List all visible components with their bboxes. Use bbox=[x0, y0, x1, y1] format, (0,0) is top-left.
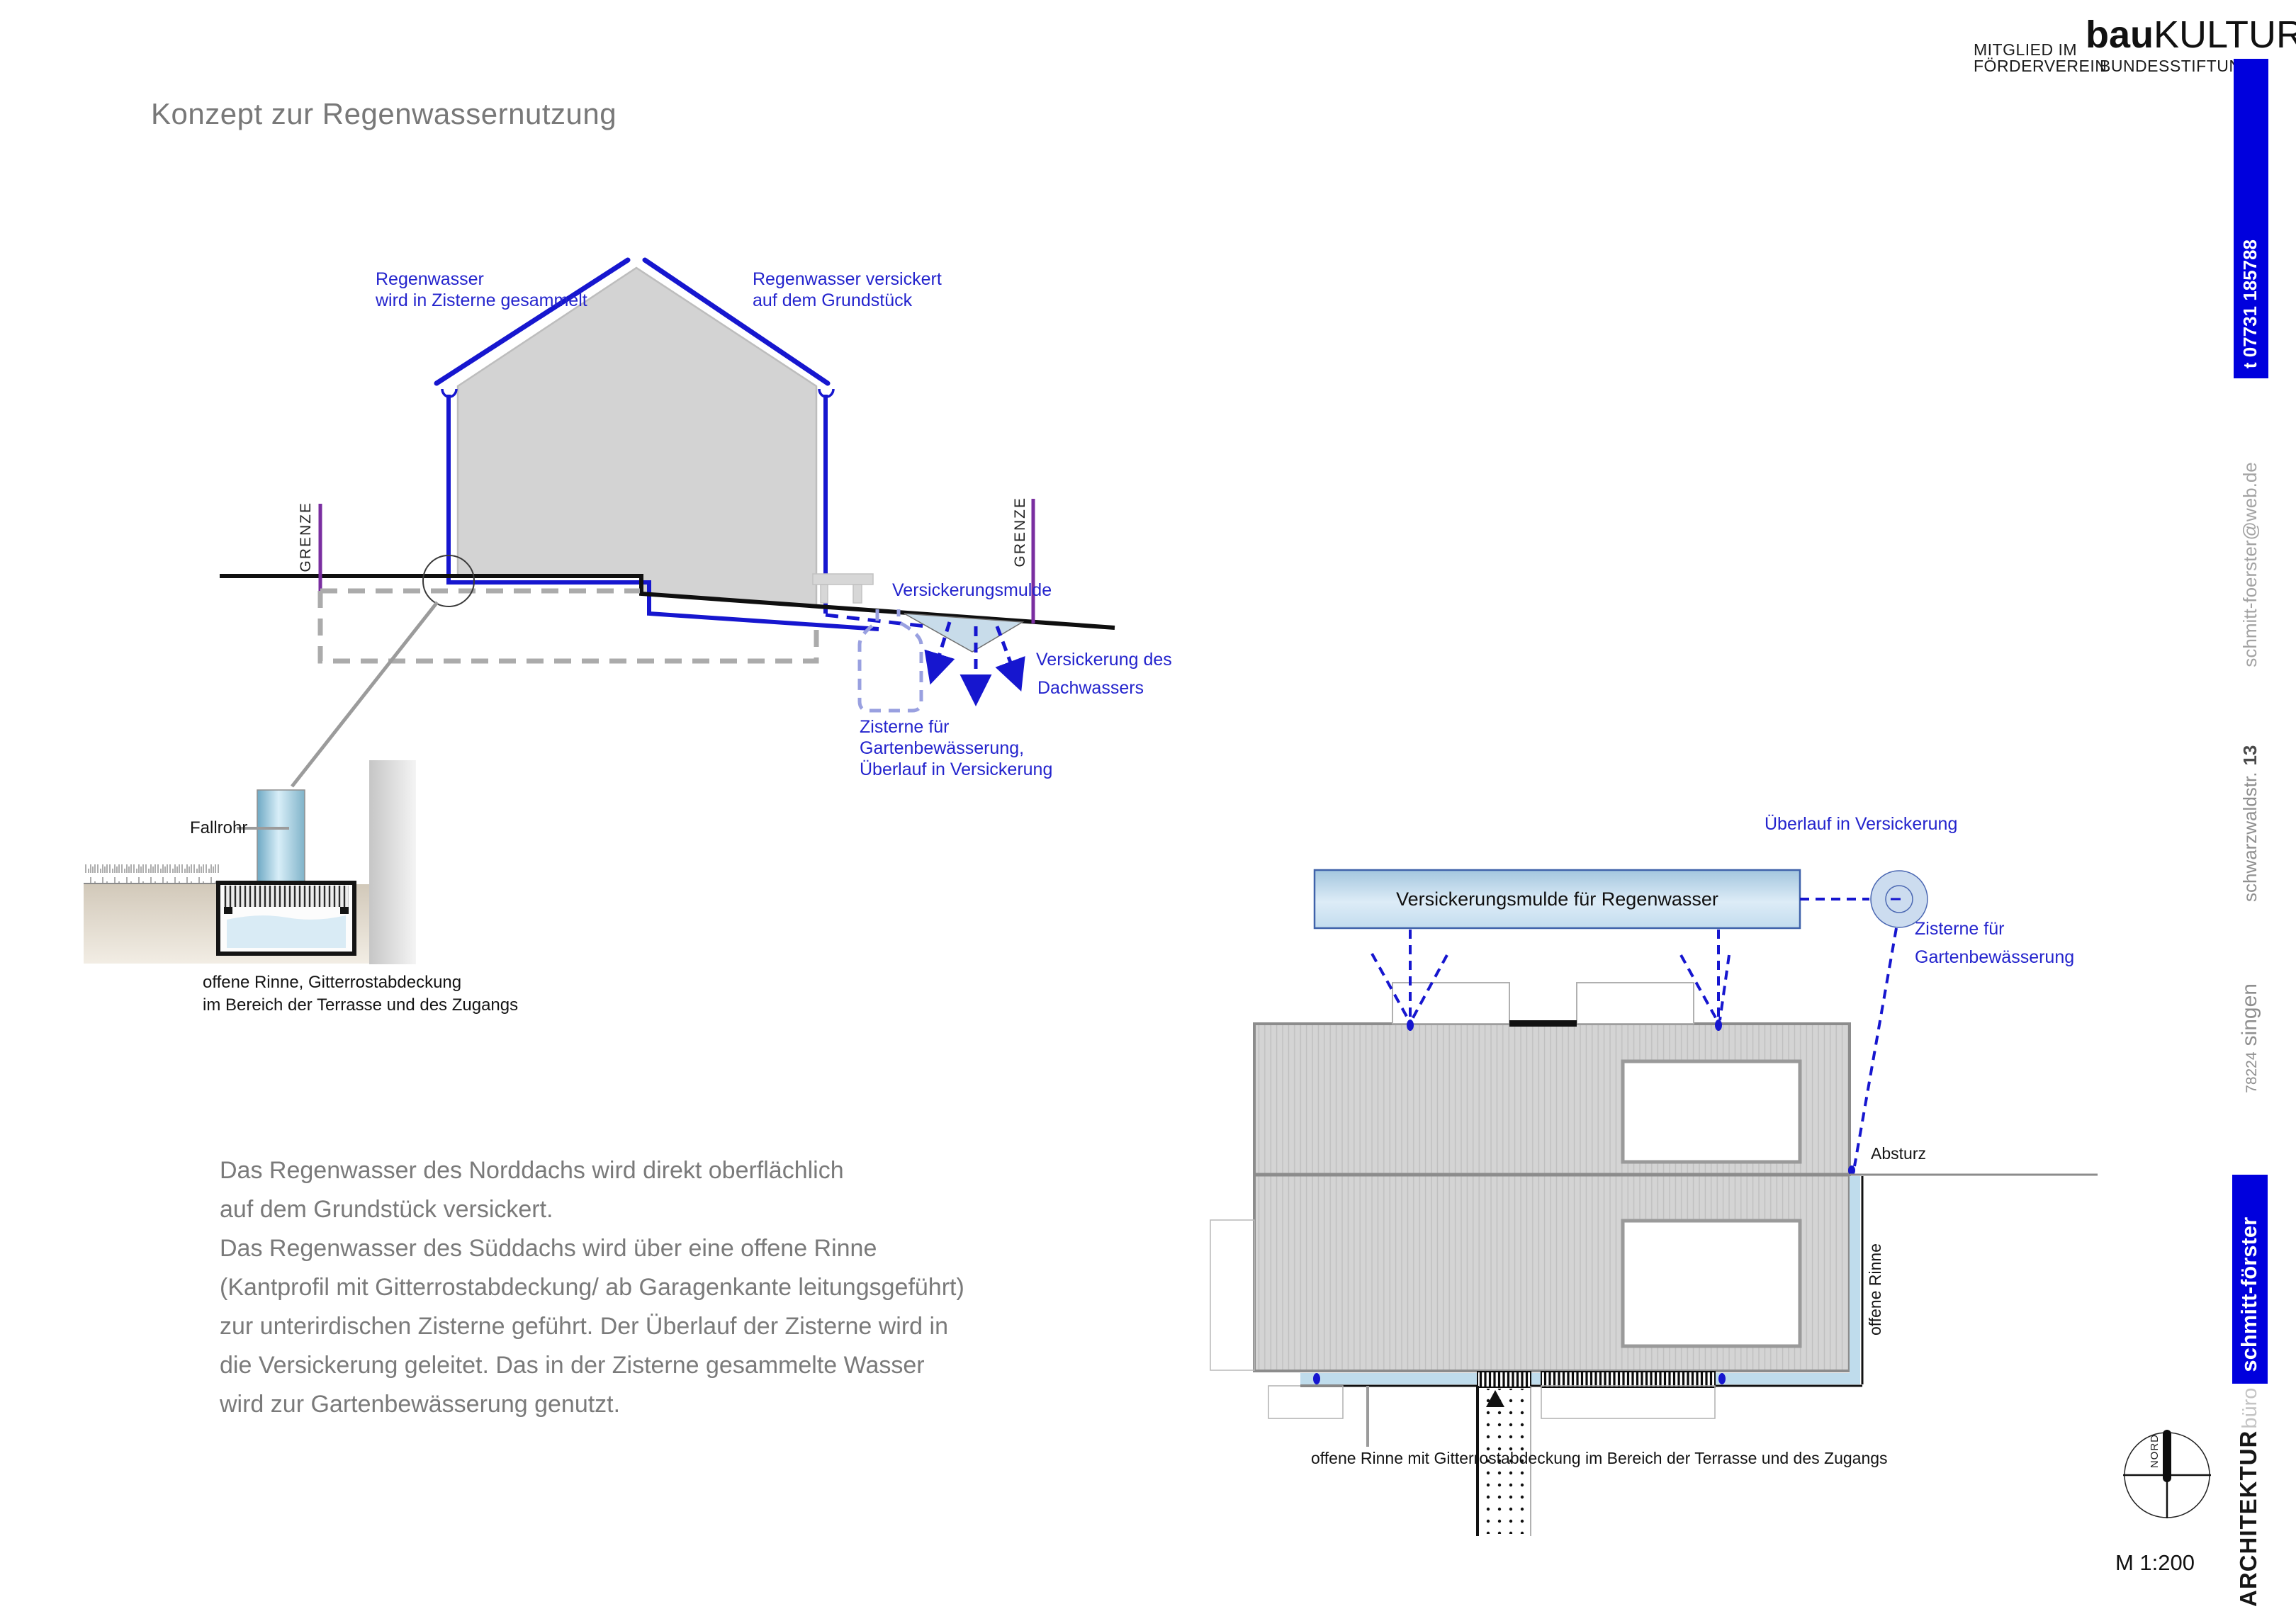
boundary-label-right: GRENZE bbox=[1012, 497, 1029, 568]
cistern-label-2: Gartenbewässerung, bbox=[860, 739, 1024, 759]
concept-paragraph: Das Regenwasser des Norddachs wird direk… bbox=[220, 1151, 964, 1424]
north-compass-icon bbox=[2123, 1433, 2211, 1518]
plan-overflow-label: Überlauf in Versickerung bbox=[1765, 815, 1957, 835]
plan-drop-label: Absturz bbox=[1871, 1145, 1926, 1163]
downpipe-detail bbox=[257, 790, 305, 884]
firm-street: schwarzwaldstr. bbox=[2239, 772, 2261, 903]
infiltration-arrow bbox=[997, 626, 1018, 682]
channel-detail-drawing bbox=[84, 760, 416, 964]
firm-street-no: 13 bbox=[2239, 745, 2261, 766]
wall bbox=[369, 760, 416, 964]
firm-zip: 78224 bbox=[2244, 1051, 2261, 1093]
logo-foundation: BUNDESSTIFTUNG bbox=[2100, 57, 2254, 76]
firm-architektur: ARCHITEKTUR bbox=[2235, 1430, 2262, 1607]
logo-member-line2: FÖRDERVEREIN bbox=[1974, 57, 2107, 76]
detail-caption-2: im Bereich der Terrasse und des Zugangs bbox=[203, 996, 518, 1015]
open-channel-right bbox=[1850, 1176, 1860, 1383]
firm-name-badge: schmitt-förster bbox=[2232, 1175, 2268, 1384]
plan-caption: offene Rinne mit Gitterrostabdeckung im … bbox=[1311, 1450, 1888, 1467]
water-fill bbox=[227, 915, 346, 948]
grass bbox=[84, 864, 220, 884]
section-diagram bbox=[220, 260, 1115, 786]
label-south-roof-1: Regenwasser versickert bbox=[753, 270, 942, 290]
plan-channel-label: offene Rinne bbox=[1866, 1243, 1885, 1336]
north-notch bbox=[1577, 983, 1694, 1024]
plan-cistern-label-2: Gartenbewässerung bbox=[1915, 948, 2074, 968]
infiltration-label-2: Dachwassers bbox=[1037, 679, 1144, 699]
firm-email: schmitt-foerster@web.de bbox=[2239, 462, 2261, 667]
page-title: Konzept zur Regenwassernutzung bbox=[151, 98, 617, 130]
label-north-roof-1: Regenwasser bbox=[376, 270, 484, 290]
terrace-deck bbox=[813, 574, 873, 603]
baukultur-logo: bauKULTUR bbox=[2086, 13, 2296, 57]
detail-leader-line bbox=[292, 602, 437, 786]
roof-plan bbox=[1210, 870, 2098, 1536]
plan-swale-title: Versickerungsmulde für Regenwasser bbox=[1315, 870, 1800, 928]
firm-phone-badge: t 07731 185788 bbox=[2234, 59, 2268, 378]
plan-cistern-label-1: Zisterne für bbox=[1915, 920, 2004, 939]
label-south-roof-2: auf dem Grundstück bbox=[753, 291, 912, 311]
swale-label: Versickerungsmulde bbox=[892, 581, 1052, 601]
detail-caption-1: offene Rinne, Gitterrostabdeckung bbox=[203, 973, 461, 992]
infiltration-label-1: Versickerung des bbox=[1036, 650, 1172, 670]
downpipe-label: Fallrohr bbox=[190, 819, 247, 837]
roof-opening bbox=[1623, 1221, 1800, 1346]
cistern-label-3: Überlauf in Versickerung bbox=[860, 760, 1052, 780]
boundary-label-left: GRENZE bbox=[298, 502, 315, 572]
house-body bbox=[458, 268, 816, 605]
scale-label: M 1:200 bbox=[2115, 1550, 2195, 1576]
north-label: NORD bbox=[2149, 1434, 2161, 1468]
north-notch bbox=[1392, 983, 1509, 1024]
cistern-label-1: Zisterne für bbox=[860, 718, 949, 738]
roof-opening bbox=[1623, 1061, 1800, 1162]
office-sidebar: ARCHITEKTUR büro schmitt-förster 78224 s… bbox=[2232, 59, 2275, 1607]
drop-dashed-line bbox=[1855, 928, 1896, 1166]
firm-buero: büro bbox=[2239, 1388, 2262, 1429]
label-north-roof-2: wird in Zisterne gesammelt bbox=[376, 291, 587, 311]
firm-city: singen bbox=[2238, 983, 2262, 1046]
plan-sheet: Konzept zur Regenwassernutzung MITGLIED … bbox=[0, 0, 2296, 1609]
